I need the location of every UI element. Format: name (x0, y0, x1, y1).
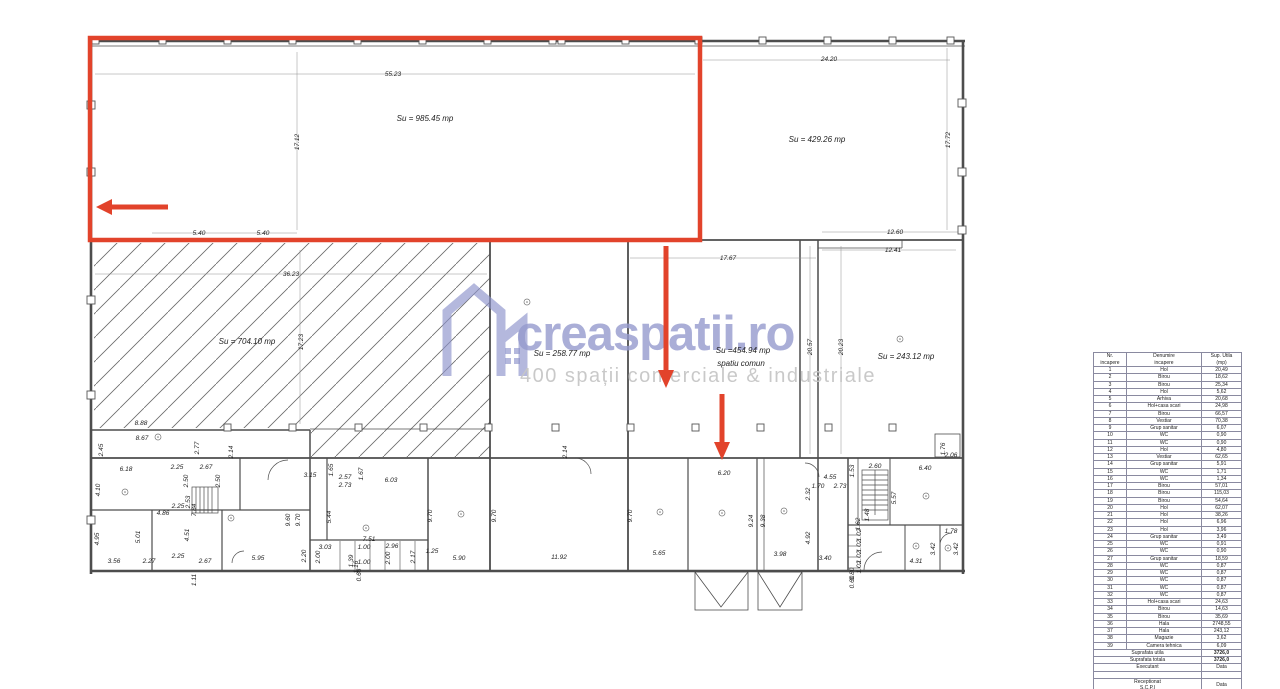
dimension-label: 2.25 (170, 464, 184, 471)
room-area: 57,01 (1202, 483, 1242, 490)
dimension-label: 3.42 (930, 542, 937, 555)
dimension-label: 3.03 (319, 544, 332, 551)
room-name: WC (1127, 591, 1202, 598)
dimension-label: 6.03 (385, 477, 398, 484)
su-label: Su = 258.77 mp (534, 349, 591, 358)
dimension-label: 2.50 (215, 474, 222, 488)
room-name: Birou (1127, 374, 1202, 381)
room-name: Grup sanitar (1127, 533, 1202, 540)
dimension-label: 4.51 (184, 528, 191, 541)
footer-label: ReceptionatS.C.P.I (1094, 678, 1202, 689)
dimension-label: 2.27 (142, 558, 156, 565)
room-area: 0,87 (1202, 584, 1242, 591)
floor-plan: creaspatii.ro 400 spații comerciale & in… (0, 0, 1280, 689)
dimension-label: 2.50 (183, 474, 190, 488)
header-nr: Nr.incapere (1094, 353, 1127, 367)
room-number: 30 (1094, 577, 1127, 584)
room-area: 66,57 (1202, 410, 1242, 417)
dimension-label: 2.06 (944, 452, 958, 459)
room-name: WC (1127, 432, 1202, 439)
dimension-label: 2.20 (301, 549, 308, 563)
footer-label (1094, 671, 1202, 678)
red-arrow-left (96, 199, 168, 215)
room-area: 24,98 (1202, 403, 1242, 410)
room-name: Grup sanitar (1127, 425, 1202, 432)
room-name: Birou (1127, 410, 1202, 417)
room-name: WC (1127, 584, 1202, 591)
dimension-label: 9.70 (295, 513, 302, 526)
room-number: 26 (1094, 548, 1127, 555)
footer-value (1202, 671, 1242, 678)
red-arrow-down-2 (714, 394, 730, 460)
room-area: 18,62 (1202, 374, 1242, 381)
dimension-label: 4.92 (805, 531, 812, 544)
room-area: 243,12 (1202, 628, 1242, 635)
room-number: 36 (1094, 620, 1127, 627)
summary-label: Suprafata totala (1094, 657, 1202, 664)
room-number: 24 (1094, 533, 1127, 540)
room-area: 0,87 (1202, 570, 1242, 577)
room-number: 32 (1094, 591, 1127, 598)
dimension-label: 36.23 (283, 271, 300, 278)
dimension-label: 2.17 (410, 550, 417, 564)
dimension-label: 5.95 (252, 555, 265, 562)
dimension-label: 2.60 (868, 463, 882, 470)
areas-table: Nr.incapereDenumireincapereSup. Utila(mp… (1093, 352, 1242, 689)
dimension-label: 5.65 (653, 550, 666, 557)
dimension-label: 1.02 (856, 560, 863, 573)
room-area: 18,59 (1202, 555, 1242, 562)
dimension-label: 1.11 (191, 574, 198, 587)
room-area: 35,69 (1202, 613, 1242, 620)
room-area: 5,91 (1202, 461, 1242, 468)
summary-label: Suprafata utila (1094, 649, 1202, 656)
room-number: 1 (1094, 367, 1127, 374)
dimension-label: 8.67 (136, 435, 149, 442)
room-number: 35 (1094, 613, 1127, 620)
dimension-label: 4.55 (824, 474, 837, 481)
room-area: 0,90 (1202, 432, 1242, 439)
dimension-label: 2.45 (98, 443, 105, 457)
room-name: Birou (1127, 483, 1202, 490)
dimension-label: 2.14 (228, 445, 235, 459)
dimension-label: 2.67 (199, 464, 213, 471)
dimension-label: 5.44 (326, 510, 333, 523)
room-number: 27 (1094, 555, 1127, 562)
dimension-label: 55.23 (385, 71, 402, 78)
room-area: 20,68 (1202, 396, 1242, 403)
dimension-label: 0.66 (356, 568, 363, 581)
room-name: Birou (1127, 381, 1202, 388)
dimension-label: 2.96 (385, 543, 399, 550)
dimension-label: 2.77 (194, 441, 201, 455)
dimension-label: 1.53 (849, 464, 856, 477)
room-number: 12 (1094, 446, 1127, 453)
dimension-label: 12.60 (887, 229, 904, 236)
dimension-label: 2.57 (338, 474, 352, 481)
room-name: Hol+casa scari (1127, 599, 1202, 606)
room-area: 0,87 (1202, 591, 1242, 598)
room-name: Camera tehnica (1127, 642, 1202, 649)
room-name: Hala (1127, 620, 1202, 627)
su-label: Su = 243.12 mp (878, 352, 935, 361)
room-area: 0,91 (1202, 541, 1242, 548)
room-name: Arhiva (1127, 396, 1202, 403)
su-label: spatiu comun (717, 359, 765, 368)
dimension-label: 17.72 (945, 131, 952, 148)
dimension-label: 2.00 (315, 550, 322, 564)
room-number: 20 (1094, 504, 1127, 511)
dimension-label: 2.00 (385, 551, 392, 565)
room-area: 3,96 (1202, 526, 1242, 533)
dimension-label: 5.57 (891, 491, 898, 504)
room-area: 0,90 (1202, 439, 1242, 446)
room-area: 0,87 (1202, 577, 1242, 584)
watermark-tagline: 400 spații comerciale & industriale (520, 365, 876, 387)
room-name: Vestiar (1127, 417, 1202, 424)
dimension-label: 7.51 (363, 536, 376, 543)
su-label: Su =454.94 mp (716, 346, 771, 355)
room-name: WC (1127, 570, 1202, 577)
dimension-label: 1.65 (328, 463, 335, 476)
room-name: Hol (1127, 388, 1202, 395)
dimension-label: 20.57 (807, 338, 814, 356)
room-area: 24,63 (1202, 599, 1242, 606)
room-name: WC (1127, 475, 1202, 482)
dimension-label: 12.41 (885, 247, 902, 254)
su-label: Su = 985.45 mp (397, 114, 454, 123)
summary-value: 3726,0 (1202, 657, 1242, 664)
room-name: Hol (1127, 446, 1202, 453)
room-area: 38,26 (1202, 512, 1242, 519)
dimension-label: 1.48 (864, 508, 871, 521)
room-number: 17 (1094, 483, 1127, 490)
dimension-label: 0.60 (849, 575, 856, 588)
dimension-label: 1.78 (945, 528, 958, 535)
dimension-label: 1.25 (426, 548, 439, 555)
su-label: Su = 429.26 mp (789, 135, 846, 144)
dimension-label: 17.67 (720, 255, 737, 262)
dimension-label: 2.25 (171, 553, 185, 560)
room-name: WC (1127, 439, 1202, 446)
room-name: Hol+casa scari (1127, 403, 1202, 410)
dimension-label: 3.40 (819, 555, 832, 562)
su-label: Su = 704.10 mp (219, 337, 276, 346)
room-area: 2748,55 (1202, 620, 1242, 627)
dimension-label: 5.90 (453, 555, 466, 562)
room-number: 34 (1094, 606, 1127, 613)
room-number: 5 (1094, 396, 1127, 403)
room-number: 2 (1094, 374, 1127, 381)
room-name: Birou (1127, 490, 1202, 497)
dimension-label: 2.25 (171, 503, 185, 510)
room-number: 3 (1094, 381, 1127, 388)
room-name: Birou (1127, 606, 1202, 613)
dimension-label: 5.40 (257, 230, 270, 237)
dimension-label: 1.02 (856, 528, 863, 541)
room-number: 7 (1094, 410, 1127, 417)
dimension-label: 4.10 (95, 483, 102, 496)
footer-value: Data (1202, 678, 1242, 689)
room-name: Hol (1127, 519, 1202, 526)
dimension-label: 2.14 (562, 445, 569, 459)
dimension-label: 1.70 (812, 483, 825, 490)
dimension-label: 9.60 (285, 513, 292, 526)
room-number: 9 (1094, 425, 1127, 432)
dimension-label: 2.73 (833, 483, 847, 490)
footer-value: Data (1202, 664, 1242, 671)
room-number: 21 (1094, 512, 1127, 519)
room-name: Hol (1127, 367, 1202, 374)
dimension-label: 4.86 (157, 510, 170, 517)
room-area: 3,62 (1202, 635, 1242, 642)
room-number: 39 (1094, 642, 1127, 649)
highlight-rectangle (90, 38, 700, 240)
room-area: 25,34 (1202, 381, 1242, 388)
dimension-label: 4.95 (94, 532, 101, 545)
room-number: 23 (1094, 526, 1127, 533)
room-area: 20,49 (1202, 367, 1242, 374)
dimension-label: 11.92 (551, 554, 567, 561)
room-number: 18 (1094, 490, 1127, 497)
room-area: 3,49 (1202, 533, 1242, 540)
room-area: 6,96 (1202, 519, 1242, 526)
room-area: 115,03 (1202, 490, 1242, 497)
room-name: Magazie (1127, 635, 1202, 642)
room-name: Grup sanitar (1127, 555, 1202, 562)
room-number: 33 (1094, 599, 1127, 606)
room-name: WC (1127, 577, 1202, 584)
dimension-label: 1.00 (358, 559, 371, 566)
room-number: 22 (1094, 519, 1127, 526)
room-name: Grup sanitar (1127, 461, 1202, 468)
room-name: Birou (1127, 613, 1202, 620)
room-area: 1,34 (1202, 475, 1242, 482)
room-number: 16 (1094, 475, 1127, 482)
dimension-label: 2.73 (338, 482, 352, 489)
dimension-label: 9.70 (491, 509, 498, 522)
room-area: 54,64 (1202, 497, 1242, 504)
dimension-label: 1.02 (856, 539, 863, 552)
room-number: 8 (1094, 417, 1127, 424)
room-area: 1,71 (1202, 468, 1242, 475)
room-area: 14,63 (1202, 606, 1242, 613)
room-area: 70,38 (1202, 417, 1242, 424)
dimension-label: 2.67 (198, 558, 212, 565)
room-area: 0,90 (1202, 548, 1242, 555)
dimension-label: 9.38 (760, 514, 767, 527)
room-area: 4,80 (1202, 446, 1242, 453)
dimension-label: 3.98 (774, 551, 787, 558)
dimension-label: 20.23 (838, 338, 845, 356)
dimension-label: 4.31 (910, 558, 923, 565)
room-area: 0,87 (1202, 562, 1242, 569)
room-name: Vestiar (1127, 454, 1202, 461)
room-number: 6 (1094, 403, 1127, 410)
dimension-label: 5.01 (135, 530, 142, 543)
room-name: WC (1127, 562, 1202, 569)
dimension-label: 8.88 (135, 420, 148, 427)
room-number: 28 (1094, 562, 1127, 569)
room-name: Hol (1127, 512, 1202, 519)
dimension-label: 3.56 (108, 558, 121, 565)
room-area: 6,07 (1202, 425, 1242, 432)
room-number: 11 (1094, 439, 1127, 446)
header-suprafata: Sup. Utila(mp) (1202, 353, 1242, 367)
dimension-label: 1.00 (358, 544, 371, 551)
areas-table-container: Nr.incapereDenumireincapereSup. Utila(mp… (1093, 352, 1233, 689)
header-denumire: Denumireincapere (1127, 353, 1202, 367)
dimension-label: 3.15 (304, 472, 317, 479)
dimension-label: 6.18 (120, 466, 133, 473)
summary-value: 3726,0 (1202, 649, 1242, 656)
room-area: 62,65 (1202, 454, 1242, 461)
room-number: 25 (1094, 541, 1127, 548)
room-number: 29 (1094, 570, 1127, 577)
dimension-label: 24.20 (820, 56, 838, 63)
dimension-label: 5.40 (193, 230, 206, 237)
room-name: Birou (1127, 497, 1202, 504)
dimension-label: 3.42 (953, 542, 960, 555)
dimension-label: 9.70 (427, 509, 434, 522)
dimension-label: 7.84 (191, 503, 198, 516)
dimension-label: 6.20 (718, 470, 731, 477)
dimension-label: 1.67 (358, 467, 365, 480)
room-number: 13 (1094, 454, 1127, 461)
room-area: 6,09 (1202, 642, 1242, 649)
dimension-label: 17.23 (298, 333, 305, 350)
room-name: WC (1127, 548, 1202, 555)
room-name: WC (1127, 541, 1202, 548)
room-number: 19 (1094, 497, 1127, 504)
room-name: Hol (1127, 526, 1202, 533)
room-number: 14 (1094, 461, 1127, 468)
room-number: 31 (1094, 584, 1127, 591)
room-number: 15 (1094, 468, 1127, 475)
room-number: 38 (1094, 635, 1127, 642)
room-number: 10 (1094, 432, 1127, 439)
room-number: 4 (1094, 388, 1127, 395)
room-area: 62,07 (1202, 504, 1242, 511)
footer-label: Executant (1094, 664, 1202, 671)
dimension-label: 17.12 (294, 133, 301, 150)
room-number: 37 (1094, 628, 1127, 635)
room-name: Hol (1127, 504, 1202, 511)
room-name: Hala (1127, 628, 1202, 635)
dimension-label: 9.24 (748, 514, 755, 527)
dimension-label: 6.40 (919, 465, 932, 472)
room-area: 5,62 (1202, 388, 1242, 395)
room-name: WC (1127, 468, 1202, 475)
floor-plan-page: creaspatii.ro 400 spații comerciale & in… (0, 0, 1280, 689)
dimension-label: 1.62 (855, 517, 862, 530)
loading-docks (695, 572, 802, 610)
dimension-label: 9.70 (627, 509, 634, 522)
